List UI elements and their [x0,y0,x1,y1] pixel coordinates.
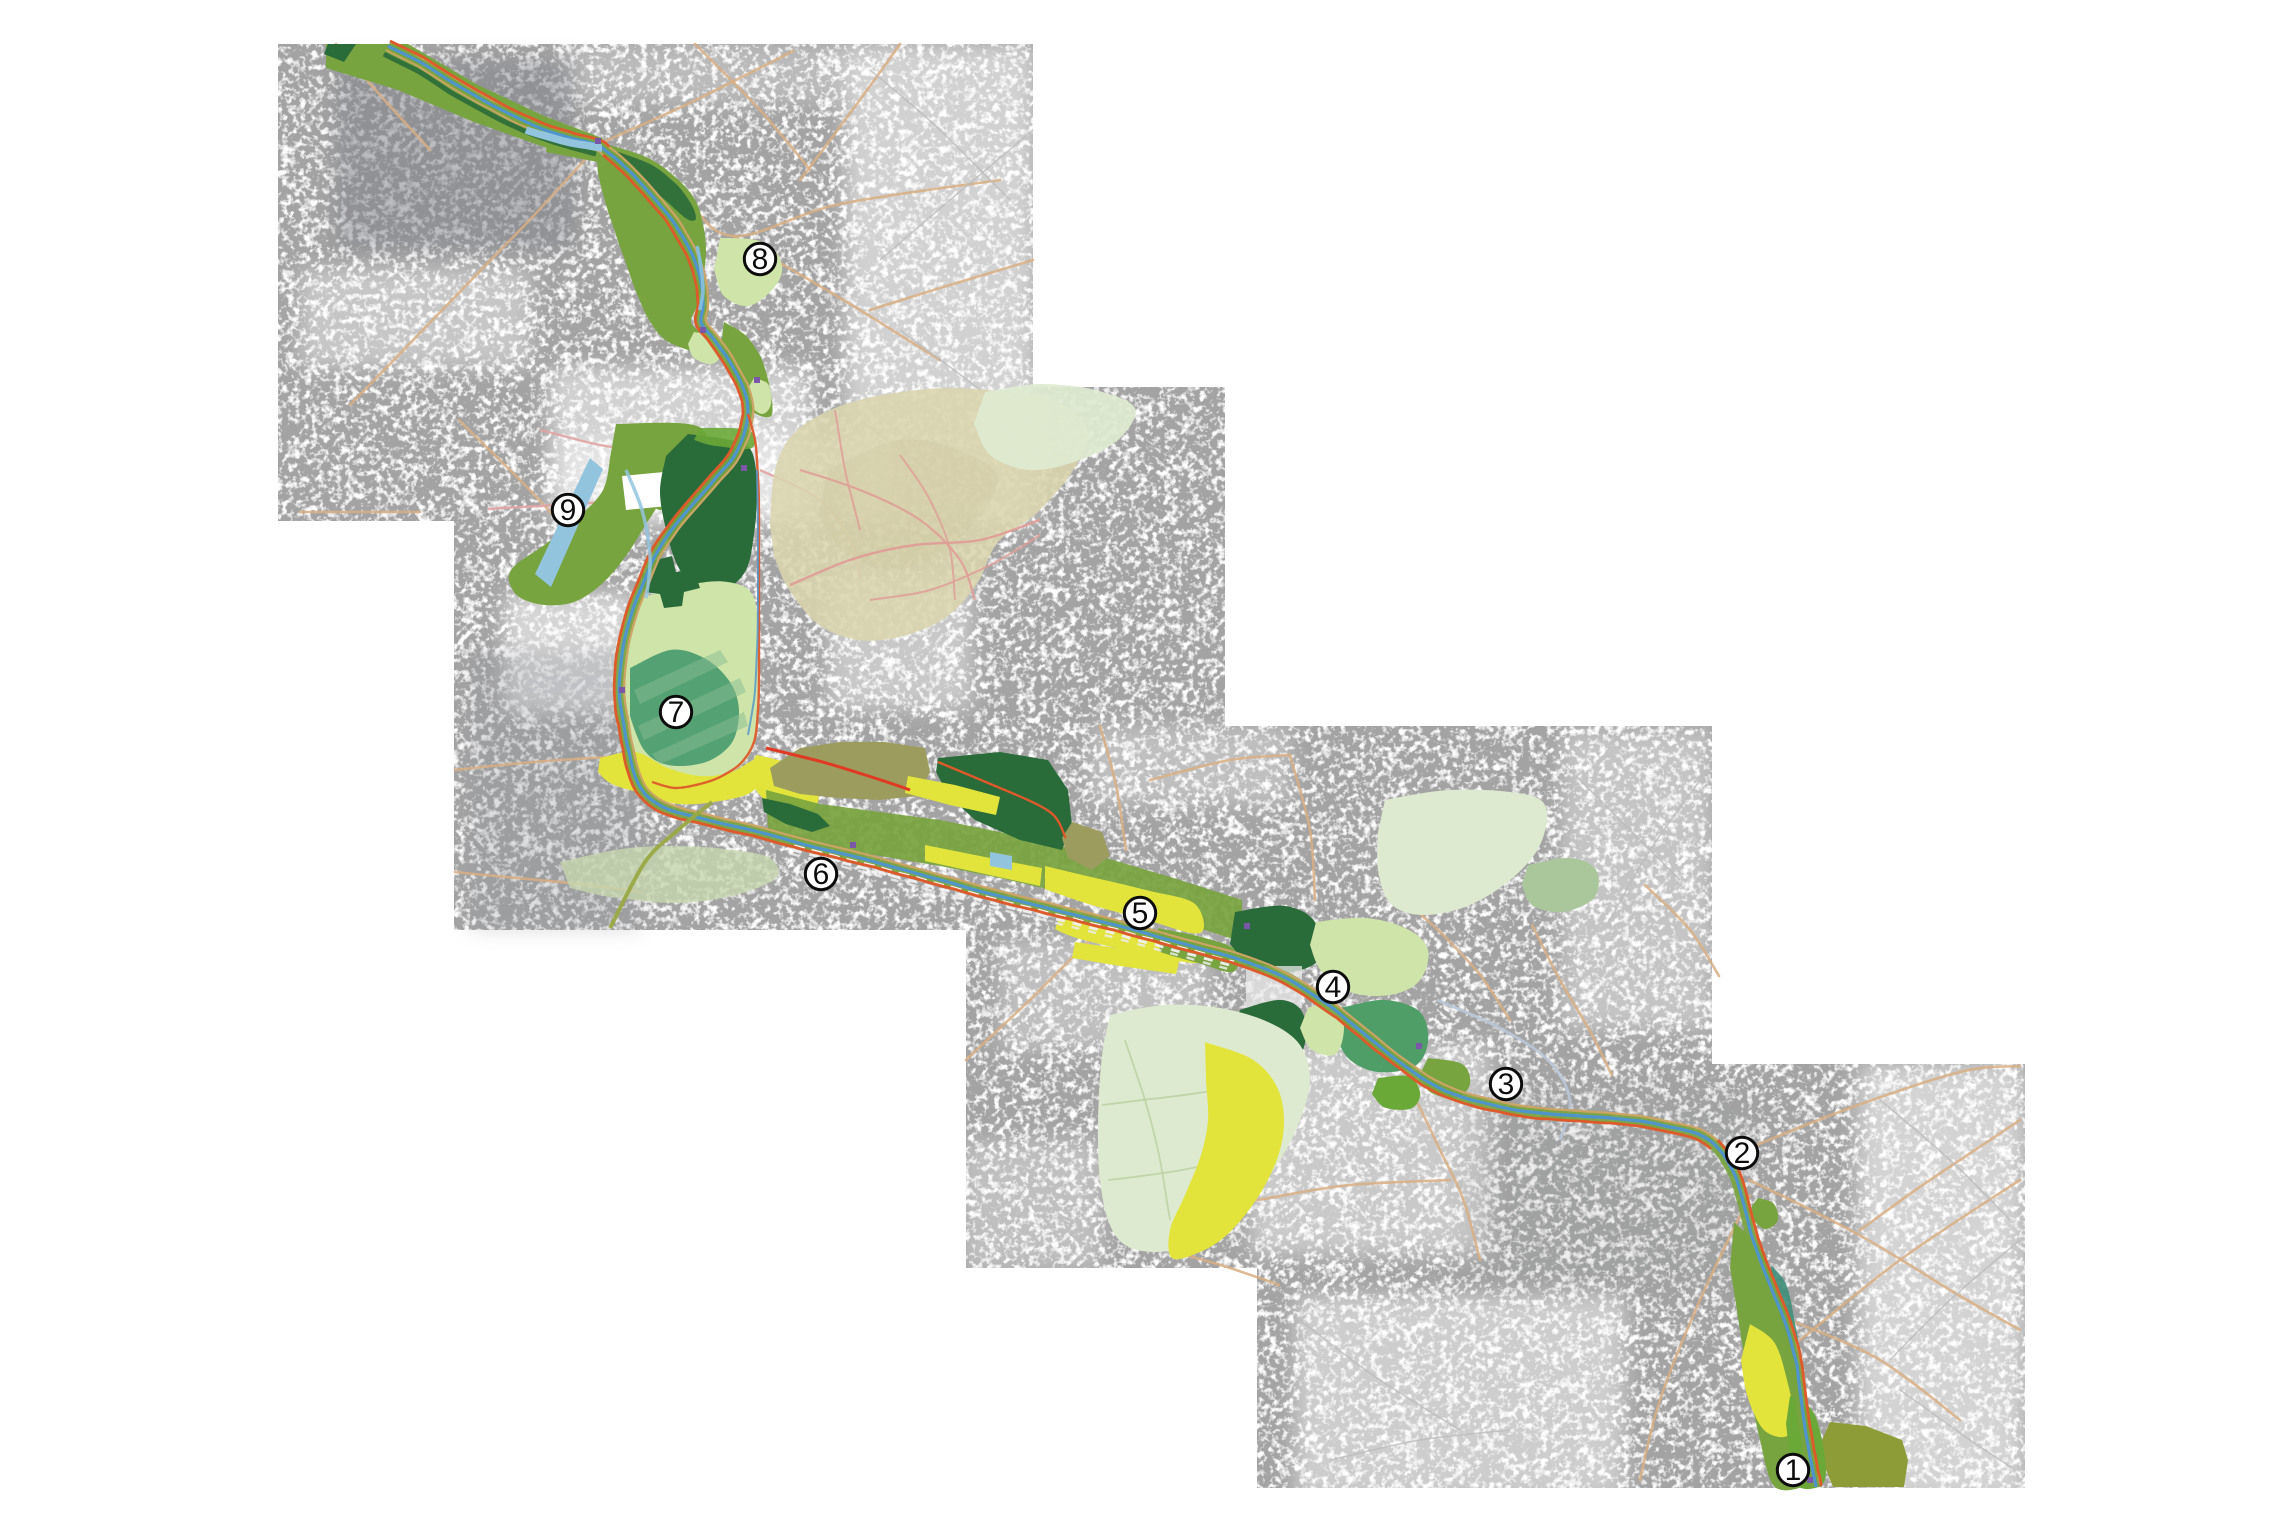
svg-text:8: 8 [752,243,769,276]
svg-text:4: 4 [1325,971,1342,1004]
svg-text:6: 6 [813,858,830,891]
svg-text:2: 2 [1734,1137,1751,1170]
svg-text:5: 5 [1132,897,1149,930]
svg-text:9: 9 [560,494,577,527]
svg-text:7: 7 [668,696,685,729]
svg-text:3: 3 [1498,1068,1515,1101]
svg-text:1: 1 [1785,1454,1802,1487]
